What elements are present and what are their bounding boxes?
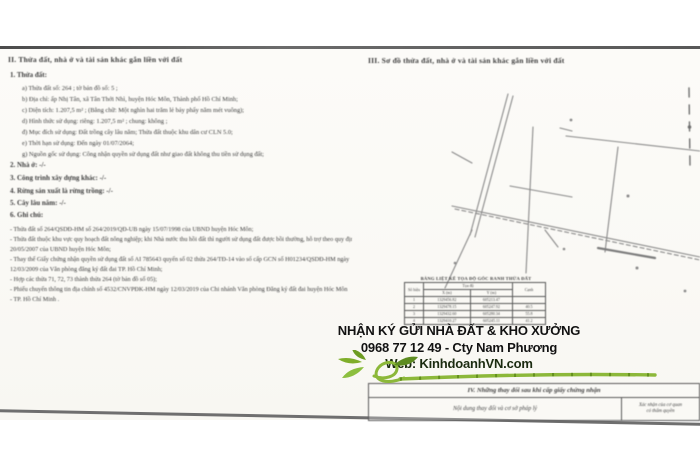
cell: 605247.92 (470, 304, 512, 311)
note-line: - Thửa đất số 264/QSDĐ-HM số 264/2019/QĐ… (10, 225, 352, 235)
cadastral-sketch (395, 80, 700, 295)
parcel-line: e) Thời hạn sử dụng: Đến ngày 01/07/2064… (22, 138, 352, 149)
cell: 605213.47 (470, 297, 512, 304)
parcel-line: d) Hình thức sử dụng: riêng: 1.207,5 m² … (22, 116, 352, 127)
cell: 1329478.15 (424, 304, 471, 311)
parcel-line: c) Diện tích: 1.207,5 m² ; (Bằng chữ: Mộ… (22, 105, 352, 116)
cell (513, 297, 546, 304)
section-constructions: 3. Công trình xây dựng khác: -/- (10, 174, 106, 182)
table-row: 2 1329478.15 605247.92 40.5 (405, 304, 546, 311)
screenshot-canvas: II. Thửa đất, nhà ở và tài sản khác gắn … (0, 0, 700, 470)
changes-authority-header: Xác nhận của cơ quan có thẩm quyền (622, 398, 699, 420)
col-edge: Cạnh (513, 283, 546, 297)
table-row: 3 1329432.60 605280.34 55.8 (405, 311, 546, 318)
parcel-line: a) Thửa đất số: 264 ; tờ bản đồ số: 5 ; (22, 83, 352, 94)
table-row: 1 1329456.82 605213.47 (405, 297, 546, 304)
parcel-line: đ) Mục đích sử dụng: Đất trồng cây lâu n… (22, 127, 352, 138)
section-perennial: 5. Cây lâu năm: -/- (10, 199, 66, 207)
cell: 55.8 (513, 311, 546, 318)
parcel-line: b) Địa chỉ: ấp Nhị Tân, xã Tân Thới Nhì,… (22, 94, 352, 105)
coordinate-table: Số hiệu Tọa độ Cạnh X (m) Y (m) 1 132945… (404, 282, 546, 325)
changes-content-header: Nội dung thay đổi và cơ sở pháp lý (369, 398, 622, 420)
authority-line: có thẩm quyền (647, 409, 675, 415)
cell: 2 (405, 304, 424, 311)
cell: 605280.34 (470, 311, 512, 318)
note-line: 20/05/2007 của UBND huyện Hóc Môn; (10, 245, 352, 255)
coordinate-table-title: BẢNG LIỆT KÊ TỌA ĐỘ GÓC RANH THỬA ĐẤT (404, 276, 548, 281)
section-forest: 4. Rừng sản xuất là rừng trồng: -/- (10, 187, 113, 195)
col-x: X (m) (424, 290, 471, 297)
col-y: Y (m) (470, 290, 512, 297)
parcel-heading: 1. Thửa đất: (10, 71, 47, 79)
notes-block: - Thửa đất số 264/QSDĐ-HM số 264/2019/QĐ… (10, 225, 352, 305)
cell: 3 (405, 311, 424, 318)
parcel-details: a) Thửa đất số: 264 ; tờ bản đồ số: 5 ; … (22, 83, 352, 160)
section-house: 2. Nhà ở: -/- (10, 161, 46, 169)
coordinate-table-block: BẢNG LIỆT KÊ TỌA ĐỘ GÓC RANH THỬA ĐẤT Số… (404, 276, 548, 325)
note-line: - Thửa đất thuộc khu vực quy hoạch đất n… (10, 235, 352, 245)
section-iii-title: III. Sơ đồ thửa đất, nhà ở và tài sản kh… (368, 56, 608, 65)
cell: 40.5 (513, 304, 546, 311)
ad-headline: NHẬN KÝ GỬI NHÀ ĐẤT & KHO XƯỞNG (328, 323, 590, 340)
note-line: - Thay thế Giấy chứng nhận quyền sử dụng… (10, 255, 352, 265)
col-coordinates: Tọa độ (424, 283, 513, 290)
cell: 1329432.60 (424, 311, 471, 318)
section-ii-title: II. Thửa đất, nhà ở và tài sản khác gắn … (8, 55, 308, 64)
note-line: - Phiếu chuyển thông tin địa chính số 45… (10, 285, 352, 295)
note-line: 12/03/2009 của Văn phòng đăng ký đất đai… (10, 265, 352, 275)
sketch-point-dots (454, 119, 687, 293)
cell: 1 (405, 297, 424, 304)
cell: 1329456.82 (424, 297, 471, 304)
note-line: - Hợp các thửa 71, 72, 73 thành thửa 264… (10, 275, 352, 285)
notes-heading: 6. Ghi chú: (10, 211, 43, 219)
bamboo-branch-icon (332, 350, 662, 390)
col-point-id: Số hiệu (405, 283, 424, 297)
document-top-edge (0, 46, 700, 49)
parcel-line: g) Nguồn gốc sử dụng: Công nhận quyền sử… (22, 149, 352, 160)
note-line: - TP. Hồ Chí Minh . (10, 295, 352, 305)
